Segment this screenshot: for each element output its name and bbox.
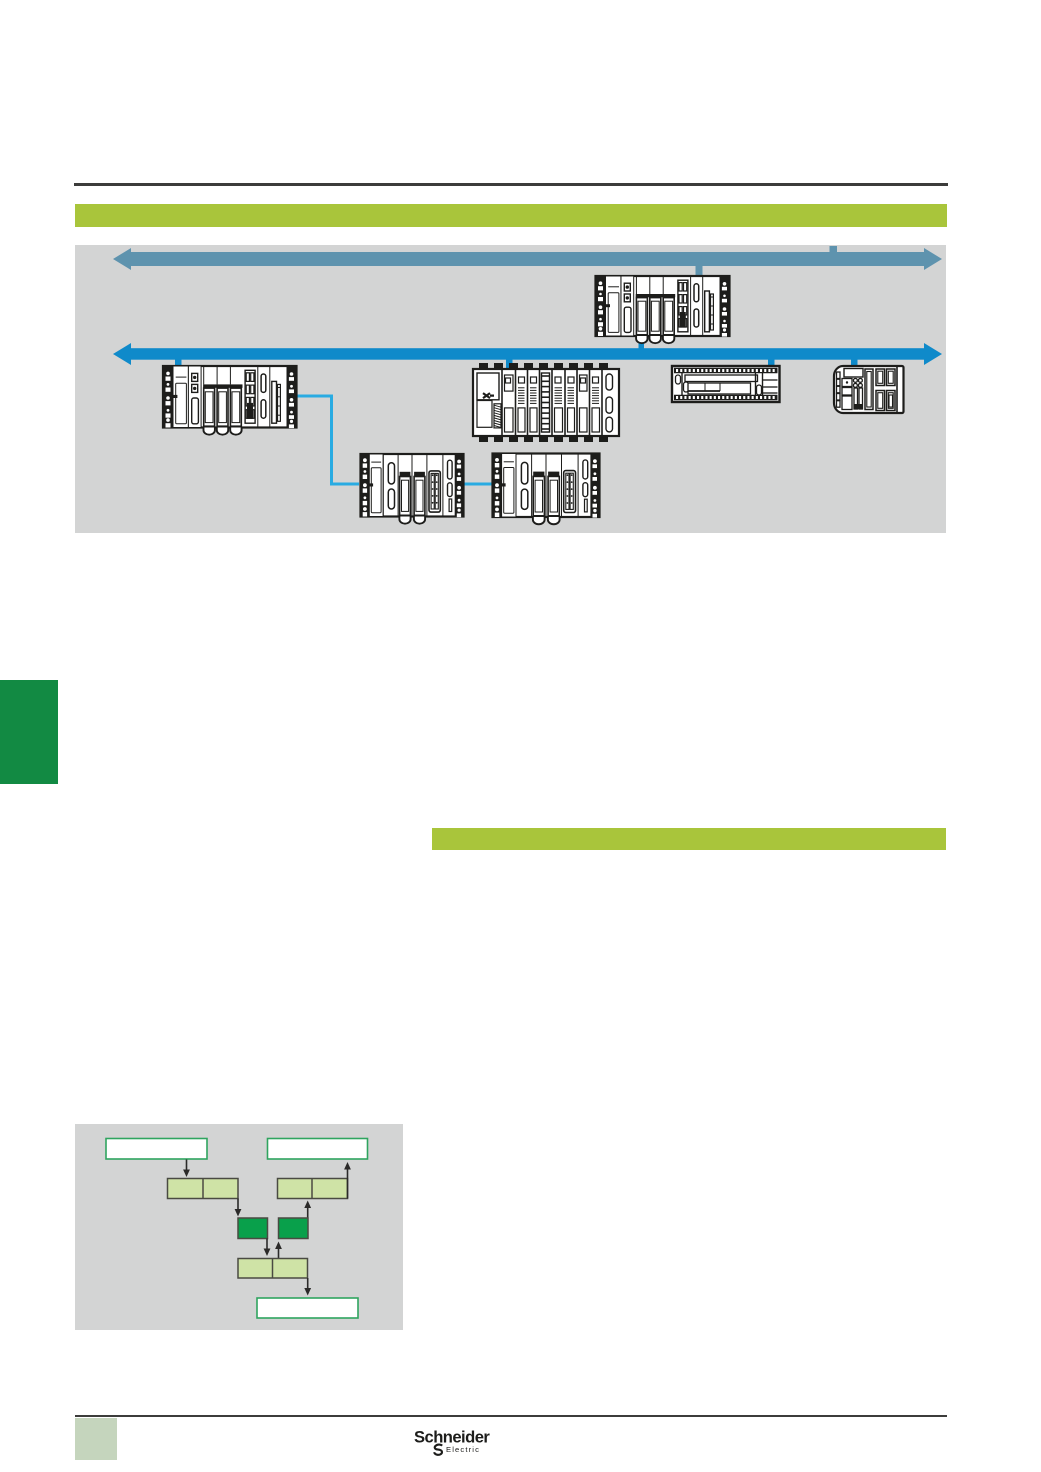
svg-text:Electric: Electric	[446, 1445, 480, 1454]
svg-text:Schneider: Schneider	[414, 1428, 490, 1447]
